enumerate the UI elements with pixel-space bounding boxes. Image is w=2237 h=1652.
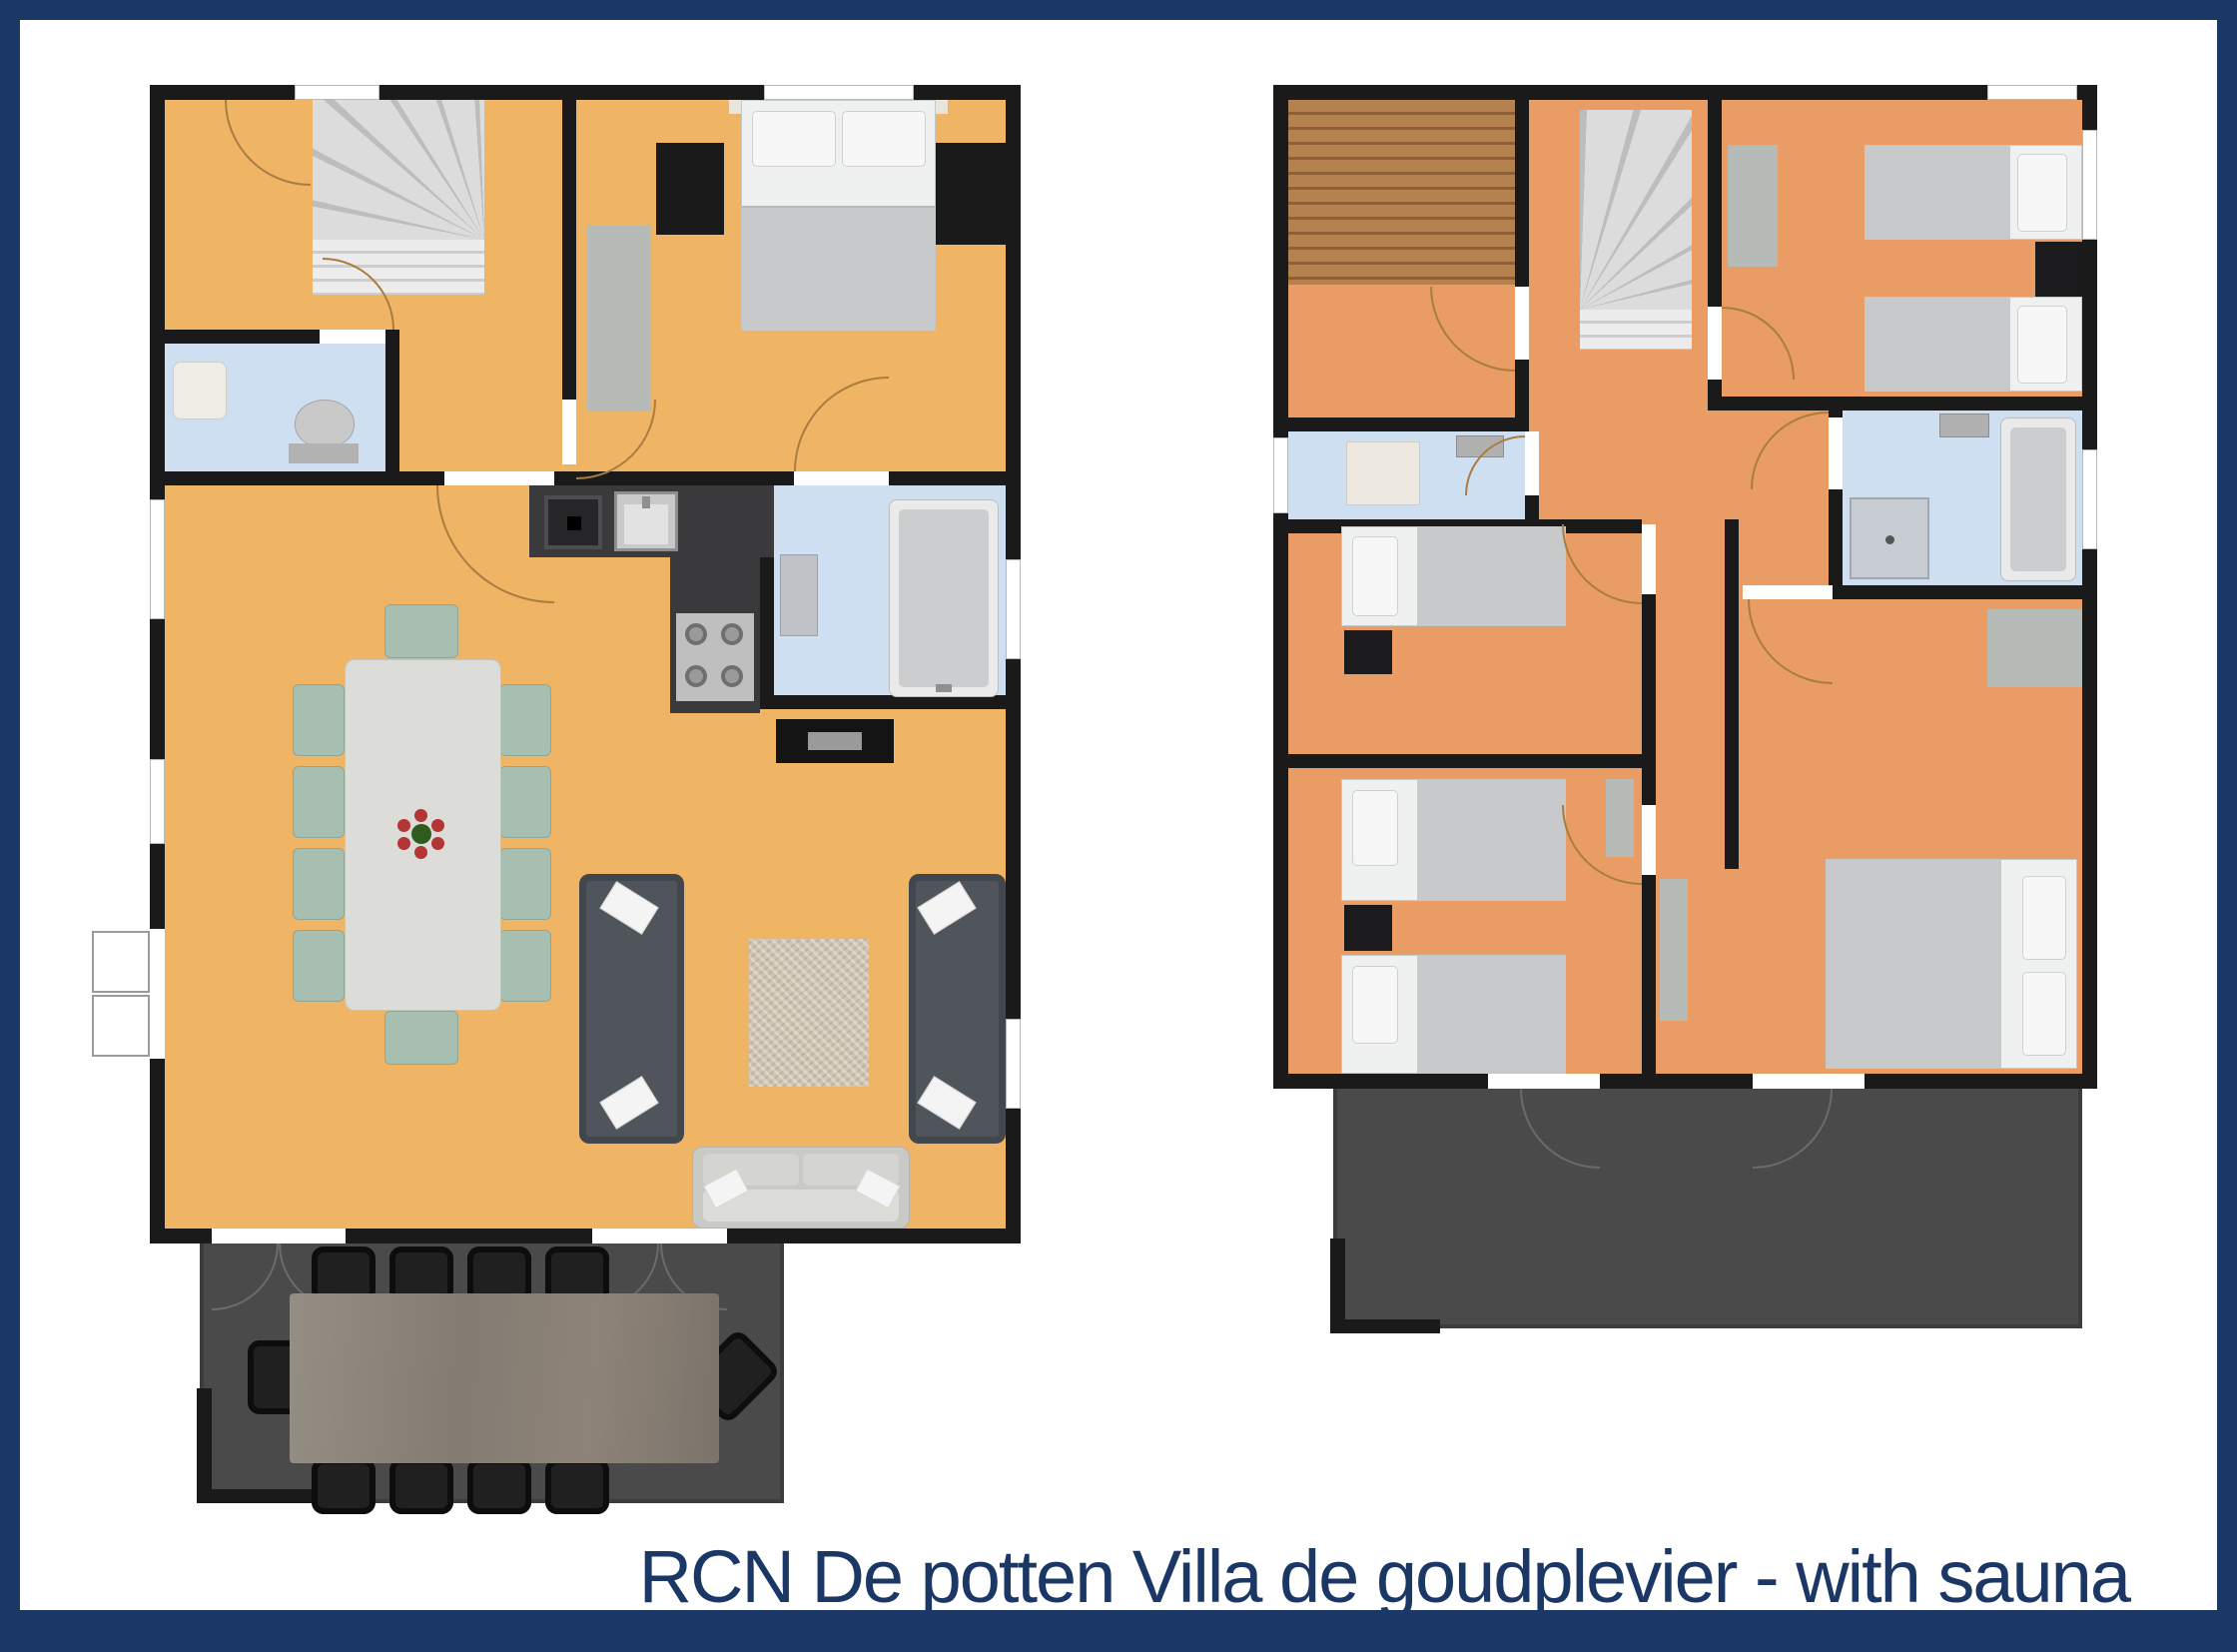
bathtub (2000, 417, 2076, 581)
shower (1850, 497, 1929, 579)
door-jamb (1515, 287, 1529, 360)
bathtub-basin (899, 509, 989, 687)
duvet (1865, 298, 2010, 391)
window (150, 499, 165, 619)
double-bed (1826, 859, 2077, 1069)
window (150, 759, 165, 844)
sink-basin (624, 504, 668, 544)
single-bed (1864, 297, 2082, 392)
wall (760, 695, 1006, 709)
wardrobe (1987, 609, 2082, 687)
pillow (2022, 972, 2066, 1056)
dining-chair (293, 766, 345, 838)
wall (165, 330, 320, 344)
single-bed (1341, 779, 1566, 901)
window (2082, 449, 2097, 549)
wardrobe (1728, 145, 1778, 267)
door-swing-arc (1722, 307, 1795, 380)
balcony-door-opening (1753, 1074, 1864, 1089)
single-bed (1864, 145, 2082, 240)
stove (676, 613, 754, 701)
loveseat (692, 1147, 910, 1229)
dining-chair (384, 1011, 458, 1065)
duvet (1827, 860, 2001, 1068)
appliance-knob (567, 516, 581, 530)
bathtub-faucet (936, 684, 952, 692)
window (1006, 559, 1021, 659)
single-bed (1341, 526, 1566, 626)
dining-chair (293, 684, 345, 756)
door-jamb (1829, 417, 1843, 489)
caption: RCN De potten Villa de goudplevier - wit… (639, 1538, 2129, 1616)
wall (1525, 495, 1539, 519)
toilet-tank (289, 443, 359, 463)
door-jamb (444, 471, 554, 485)
door-swing-arc (436, 485, 554, 603)
bathtub-basin (2010, 427, 2066, 571)
balcony-wall-stub (1330, 1319, 1440, 1333)
entry-door-opening (150, 929, 165, 1059)
door-jamb (320, 330, 385, 344)
duvet (1865, 146, 2010, 239)
dining-chair (293, 848, 345, 920)
balcony-door-opening (1488, 1074, 1600, 1089)
duvet (1417, 780, 1565, 900)
wall (1708, 100, 1722, 307)
rug (749, 939, 869, 1087)
petal-icon (397, 837, 410, 850)
wall (889, 471, 1006, 485)
outdoor-chair (312, 1458, 375, 1514)
pillow (2017, 154, 2067, 232)
flower-center-icon (411, 824, 431, 844)
door-swing-arc (1430, 287, 1515, 372)
door-jamb (1642, 805, 1656, 875)
pillow (752, 111, 836, 167)
wardrobe (1660, 879, 1688, 1021)
staircase-treads (1580, 310, 1692, 350)
closet-block (656, 143, 724, 235)
wall (1642, 594, 1656, 805)
outdoor-chair (467, 1458, 531, 1514)
staircase (313, 100, 484, 240)
dining-chair (499, 930, 551, 1002)
single-bed (1341, 955, 1566, 1074)
wardrobe (587, 225, 651, 412)
entry-door-leaf (92, 995, 150, 1057)
wall (1833, 585, 2082, 599)
window (1987, 85, 2077, 100)
kitchen-sink (614, 491, 678, 551)
terrace-wall-stub (197, 1388, 212, 1503)
duvet (742, 206, 935, 331)
tv-sideboard (776, 719, 894, 763)
window (2082, 130, 2097, 240)
washbasin (1939, 413, 1989, 437)
sauna-bench (1288, 100, 1515, 285)
ground-floor-plan (150, 85, 1021, 1243)
petal-icon (431, 837, 444, 850)
door-swing-arc (794, 377, 889, 471)
window (764, 85, 914, 100)
tv (808, 732, 862, 750)
wall (1515, 100, 1529, 287)
bathroom-sink (780, 554, 818, 636)
dining-chair (499, 684, 551, 756)
wall (165, 471, 444, 485)
door-jamb (1708, 307, 1722, 380)
dining-chair (293, 930, 345, 1002)
door-swing-arc (1562, 805, 1642, 885)
door-jamb (562, 400, 576, 464)
staircase (1580, 110, 1692, 310)
first-floor-plan (1273, 85, 2097, 1089)
faucet (642, 496, 650, 508)
pillow (2022, 876, 2066, 960)
pillow (1352, 790, 1398, 866)
window (295, 85, 379, 100)
dining-chair (499, 766, 551, 838)
wall (1515, 360, 1529, 417)
petal-icon (414, 846, 427, 859)
toilet (295, 400, 355, 447)
entry-door-leaf (92, 931, 150, 993)
dining-chair (384, 604, 458, 658)
wall (1829, 411, 1843, 417)
door-swing-arc (1562, 524, 1642, 604)
door-swing-arc (1751, 412, 1829, 489)
balcony (1333, 1089, 2082, 1328)
pillow (1352, 536, 1398, 616)
door-swing-arc (576, 400, 656, 479)
wall (385, 330, 399, 485)
duvet (1417, 527, 1565, 625)
door-swing-arc (225, 100, 311, 186)
pillow (2017, 306, 2067, 384)
wall (1725, 519, 1739, 869)
wall (1708, 397, 2082, 411)
petal-icon (414, 809, 427, 822)
wall (1288, 754, 1642, 768)
terrace-door-opening (592, 1229, 727, 1243)
window (1273, 437, 1288, 513)
duvet (1417, 956, 1565, 1073)
door-jamb (1743, 585, 1833, 599)
washbasin (173, 362, 227, 419)
double-bed (741, 100, 936, 330)
burner-icon (685, 665, 707, 687)
floorplan-image: RCN De potten Villa de goudplevier - wit… (0, 0, 2237, 1652)
petal-icon (431, 819, 444, 832)
closet-block (936, 143, 1006, 245)
nightstand (2035, 242, 2082, 297)
pillow (842, 111, 926, 167)
burner-icon (685, 623, 707, 645)
petal-icon (397, 819, 410, 832)
outdoor-dining-table (290, 1293, 719, 1463)
outdoor-chair (389, 1458, 453, 1514)
burner-icon (721, 623, 743, 645)
wall (562, 100, 576, 400)
door-swing-arc (1748, 599, 1833, 684)
door-jamb (1525, 431, 1539, 495)
terrace-door-opening (212, 1229, 346, 1243)
nightstand (1344, 905, 1392, 951)
wall (1829, 489, 1843, 599)
nightstand (1344, 630, 1392, 674)
door-jamb (1642, 524, 1656, 594)
flower-centerpiece (396, 809, 446, 859)
dining-chair (499, 848, 551, 920)
window (1006, 1019, 1021, 1109)
shower-tray (1346, 441, 1420, 505)
pillow (1352, 966, 1398, 1044)
wall (1288, 417, 1529, 431)
outdoor-chair (545, 1458, 609, 1514)
shower-drain-icon (1885, 535, 1894, 544)
burner-icon (721, 665, 743, 687)
bathtub (889, 499, 999, 697)
door-jamb (794, 471, 889, 485)
wall (1642, 875, 1656, 1074)
